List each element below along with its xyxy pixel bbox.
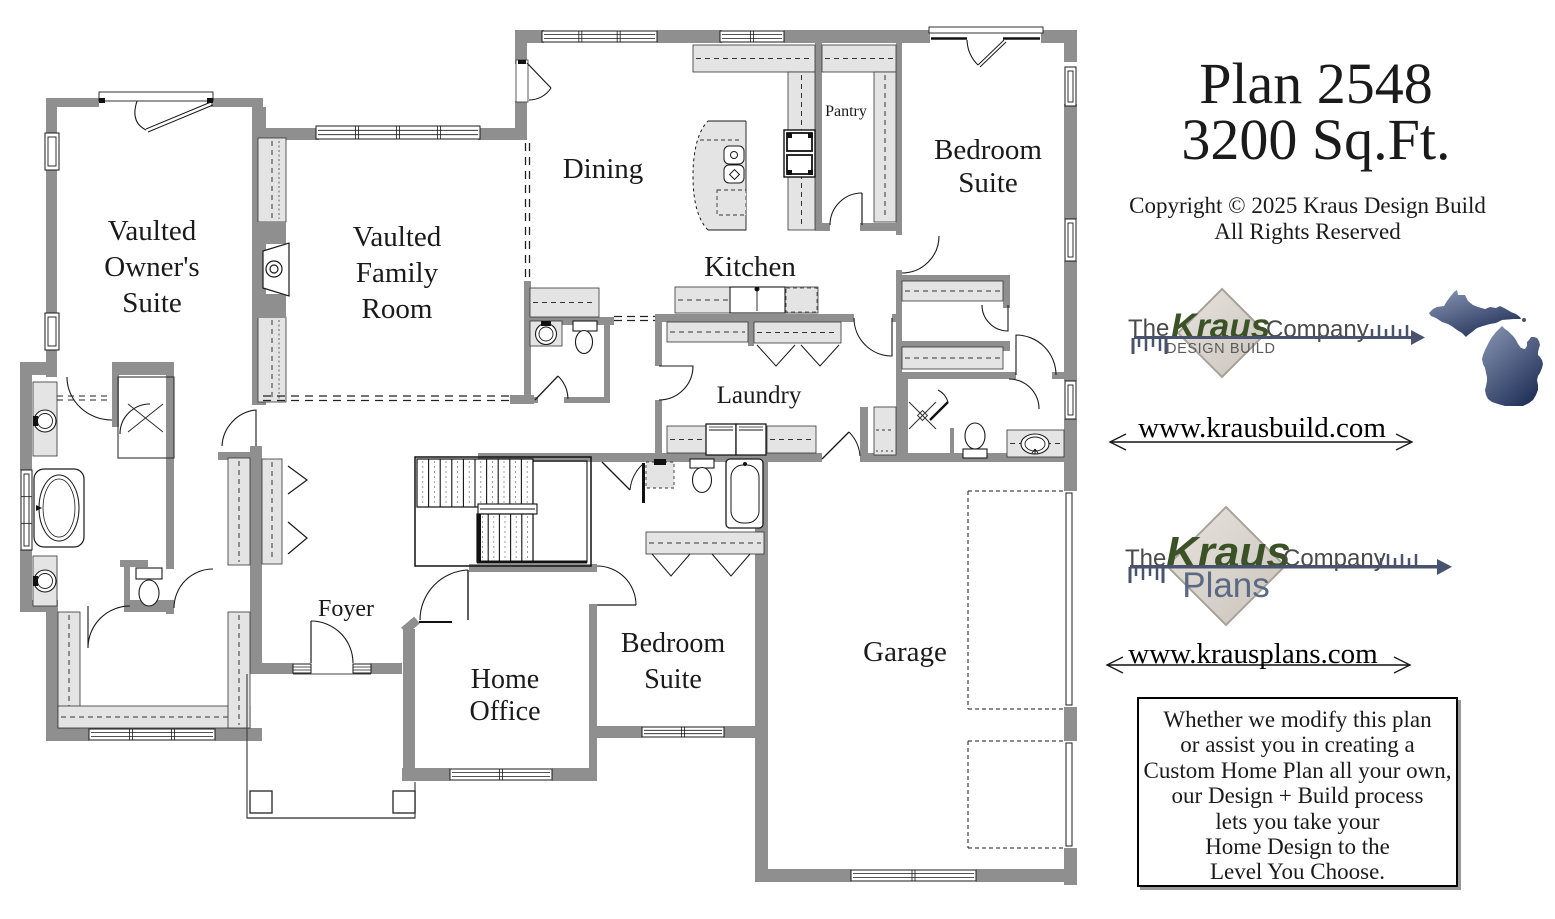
svg-text:Suite: Suite: [958, 167, 1018, 199]
svg-text:Pantry: Pantry: [825, 103, 867, 120]
svg-text:Bedroom: Bedroom: [621, 628, 725, 659]
svg-text:Kitchen: Kitchen: [704, 251, 796, 283]
svg-text:Laundry: Laundry: [717, 382, 802, 409]
svg-text:Family: Family: [356, 257, 439, 289]
svg-text:Plans: Plans: [1182, 566, 1270, 605]
svg-text:Home: Home: [471, 664, 539, 695]
svg-text:Suite: Suite: [122, 287, 182, 319]
svg-text:Suite: Suite: [644, 664, 702, 695]
svg-text:Dining: Dining: [563, 153, 644, 185]
svg-text:Foyer: Foyer: [318, 596, 374, 622]
svg-text:DESIGN BUILD: DESIGN BUILD: [1166, 341, 1276, 357]
svg-text:Office: Office: [470, 696, 541, 727]
svg-text:Vaulted: Vaulted: [353, 221, 442, 253]
svg-text:Owner's: Owner's: [104, 251, 199, 283]
svg-text:Bedroom: Bedroom: [934, 134, 1042, 166]
svg-text:Room: Room: [362, 293, 433, 325]
svg-text:Vaulted: Vaulted: [108, 215, 197, 247]
svg-text:Garage: Garage: [863, 636, 947, 668]
